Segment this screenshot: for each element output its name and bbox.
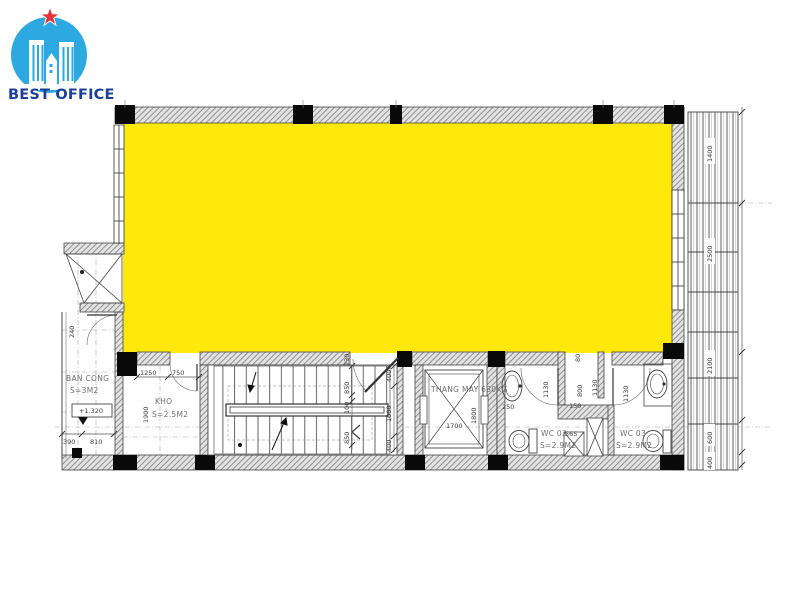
dim-stair-850b: 850	[343, 432, 351, 444]
dim-balcony-810: 810	[90, 438, 102, 446]
wc02-name: WC 02	[541, 429, 567, 438]
kho-name: KHO	[155, 397, 172, 406]
dim-kho-750: 750	[172, 369, 184, 377]
louver-screen	[688, 107, 745, 470]
lift-guide-rail-left	[420, 396, 427, 424]
balcony-area: S=3M2	[70, 386, 99, 395]
staircase	[208, 363, 397, 455]
wc02-faucet	[518, 384, 521, 387]
floor-plan-drawing: BAN CONG S=3M2 +1.320 240 390 810 1250 7…	[0, 0, 800, 600]
dim-wc02-1130: 1130	[542, 381, 550, 398]
stair-handrail	[226, 404, 388, 416]
dim-corridor-400b: 400	[385, 440, 393, 452]
dim-louver-400: 400	[706, 457, 714, 469]
wc02-toilet	[509, 429, 537, 453]
dim-wc02-250: 250	[502, 403, 514, 411]
dim-kho-1900: 1900	[142, 406, 150, 423]
dim-lift-1700: 1700	[446, 422, 463, 430]
wc03-name: WC 03	[620, 429, 646, 438]
bay-void	[66, 254, 122, 303]
dim-wc03-1130: 1130	[622, 385, 630, 402]
balcony-level: +1.320	[79, 407, 103, 415]
kho-area: S=2.5M2	[152, 410, 188, 419]
best-office-logo: BEST OFFICE	[8, 7, 115, 103]
dim-louver-1400: 1400	[706, 145, 714, 162]
dim-louver-2500: 2500	[706, 245, 714, 262]
dim-stair-100: 100	[343, 402, 351, 414]
wc03-area: S=2.9M2	[616, 441, 652, 450]
dim-vest-565: 565	[565, 430, 577, 438]
dim-stair-850a: 850	[343, 382, 351, 394]
dim-louver-2100: 2100	[706, 357, 714, 374]
dim-louver-600: 600	[706, 432, 714, 444]
lift-guide-rail-right	[481, 396, 488, 424]
dim-kho-1250: 1250	[140, 369, 157, 377]
dim-corridor-400a: 400	[385, 370, 393, 382]
dim-lift-1800: 1800	[470, 407, 478, 424]
wc02-area: S=2.9M2	[540, 441, 576, 450]
dim-stair-230: 230	[343, 354, 351, 366]
level-marker-triangle	[78, 417, 88, 425]
wc03-faucet	[662, 382, 665, 385]
logo-title: BEST OFFICE	[8, 87, 115, 103]
dim-vest-1130: 1130	[591, 379, 599, 396]
dim-vest-80: 80	[574, 354, 582, 362]
dim-vest-800: 800	[576, 385, 584, 397]
floor-plan-page: BAN CONG S=3M2 +1.320 240 390 810 1250 7…	[0, 0, 800, 600]
dim-balcony-240: 240	[68, 326, 76, 338]
dim-balcony-390: 390	[63, 438, 75, 446]
wc02-door-arc	[521, 368, 558, 405]
wc03-door-arc	[613, 368, 650, 405]
dim-vest-150: 150	[569, 402, 581, 410]
window-right	[672, 190, 684, 310]
window-left	[114, 125, 124, 243]
room-wc03	[613, 364, 672, 453]
dim-corridor-1000: 1000	[385, 405, 393, 422]
balcony-name: BAN CONG	[66, 374, 109, 383]
elevator-name: THANG MAY 630KG	[430, 385, 508, 394]
open-space-highlight	[123, 123, 672, 353]
